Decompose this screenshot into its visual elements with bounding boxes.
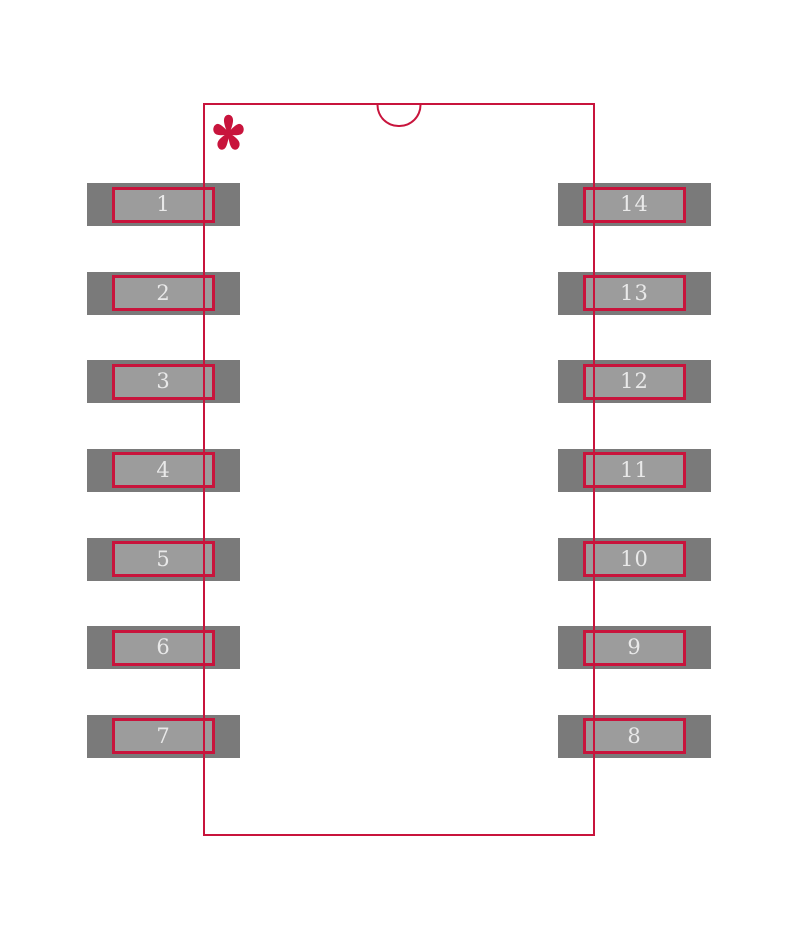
pad-14-number: 14 [620,194,649,215]
pad-7-number: 7 [156,726,170,747]
footprint-canvas: 1234567 141312111098 [0,0,800,941]
asterisk-petals [213,115,244,152]
pad-7-lead-outline: 7 [112,718,215,754]
component-body-outline [203,103,595,836]
pad-4-number: 4 [156,460,170,481]
pad-3: 3 [87,360,240,403]
pad-12-lead-outline: 12 [583,364,686,400]
pad-6-lead-outline: 6 [112,630,215,666]
pad-6-number: 6 [156,637,170,658]
pad-9-number: 9 [627,637,641,658]
pad-11-number: 11 [620,460,649,481]
pad-14: 14 [558,183,711,226]
pad-9: 9 [558,626,711,669]
pad-3-number: 3 [156,371,170,392]
pad-13-number: 13 [620,283,649,304]
pad-3-lead-outline: 3 [112,364,215,400]
pad-1-lead-outline: 1 [112,187,215,223]
pad-5: 5 [87,538,240,581]
pad-1-number: 1 [156,194,170,215]
pad-2: 2 [87,272,240,315]
pad-11-lead-outline: 11 [583,452,686,488]
pad-7: 7 [87,715,240,758]
pad-column-right: 141312111098 [558,183,711,758]
pad-8: 8 [558,715,711,758]
pad-10-number: 10 [620,549,649,570]
pin1-marker-asterisk-icon [213,114,244,153]
pad-4-lead-outline: 4 [112,452,215,488]
pad-11: 11 [558,449,711,492]
pad-1: 1 [87,183,240,226]
pad-12: 12 [558,360,711,403]
pad-14-lead-outline: 14 [583,187,686,223]
pad-13: 13 [558,272,711,315]
pad-13-lead-outline: 13 [583,275,686,311]
pad-6: 6 [87,626,240,669]
pad-10: 10 [558,538,711,581]
pad-5-number: 5 [156,549,170,570]
pad-5-lead-outline: 5 [112,541,215,577]
pin1-notch [377,105,422,127]
pad-9-lead-outline: 9 [583,630,686,666]
pad-2-lead-outline: 2 [112,275,215,311]
pad-column-left: 1234567 [87,183,240,758]
pad-2-number: 2 [156,283,170,304]
pad-8-lead-outline: 8 [583,718,686,754]
pad-8-number: 8 [627,726,641,747]
pad-12-number: 12 [620,371,649,392]
pad-4: 4 [87,449,240,492]
pad-10-lead-outline: 10 [583,541,686,577]
